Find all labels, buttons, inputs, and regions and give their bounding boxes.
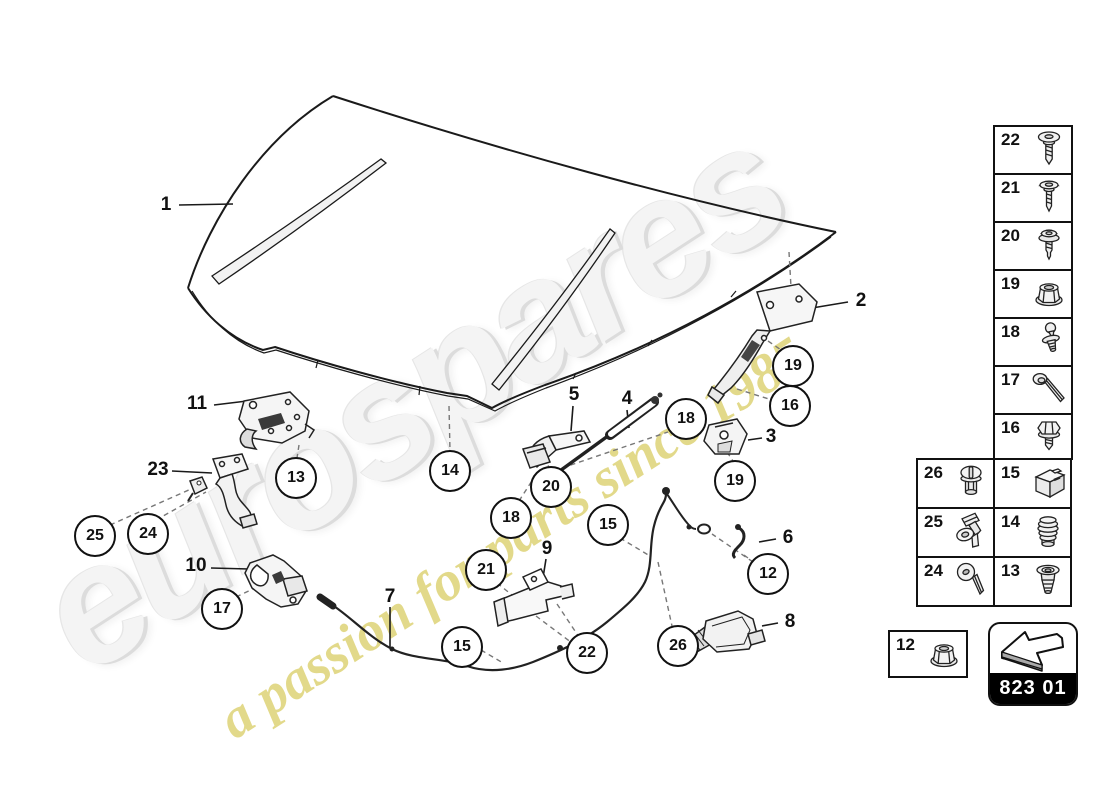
part-label-11[interactable]: 11	[187, 393, 207, 415]
callout-13[interactable]: 13	[275, 457, 317, 499]
legend-cell-17[interactable]: 17	[993, 365, 1073, 415]
callout-21[interactable]: 21	[465, 549, 507, 591]
part-latch	[245, 555, 307, 607]
legend-number: 19	[1001, 274, 1020, 294]
legend-number: 13	[1001, 561, 1020, 581]
part-label-23[interactable]: 23	[147, 459, 168, 481]
section-badge[interactable]: 823 01	[988, 622, 1078, 706]
legend-number: 12	[896, 635, 915, 655]
part-cable-clip	[733, 524, 744, 558]
callout-15b[interactable]: 15	[441, 626, 483, 668]
callout-20[interactable]: 20	[530, 466, 572, 508]
clip-block-icon	[1028, 462, 1068, 506]
callout-12[interactable]: 12	[747, 553, 789, 595]
part-label-6[interactable]: 6	[783, 527, 794, 549]
part-strut-bracket	[704, 419, 747, 454]
flange-nut-icon	[924, 633, 964, 675]
callout-16[interactable]: 16	[769, 385, 811, 427]
legend-number: 17	[1001, 370, 1020, 390]
legend-number: 20	[1001, 226, 1020, 246]
legend-cell-12[interactable]: 12	[888, 630, 968, 678]
expanding-grommet-icon	[1028, 560, 1068, 604]
bonnet-diagram-art	[0, 0, 1100, 800]
part-label-10[interactable]: 10	[185, 555, 206, 577]
legend-number: 25	[924, 512, 943, 532]
legend-cell-25[interactable]: 25	[916, 507, 995, 558]
legend-number: 14	[1001, 512, 1020, 532]
legend-cell-14[interactable]: 14	[993, 507, 1072, 558]
legend-cell-22[interactable]: 22	[993, 125, 1073, 175]
callout-24[interactable]: 24	[127, 513, 169, 555]
part-label-4[interactable]: 4	[622, 388, 633, 410]
part-cable-bracket	[494, 569, 574, 626]
oval-head-screw-icon	[1029, 176, 1069, 220]
part-label-7[interactable]: 7	[385, 586, 396, 608]
callout-26[interactable]: 26	[657, 625, 699, 667]
legend-cell-20[interactable]: 20	[993, 221, 1073, 271]
legend-cell-15[interactable]: 15	[993, 458, 1072, 509]
callout-15a[interactable]: 15	[587, 504, 629, 546]
long-bolt-icon	[1029, 368, 1069, 412]
bonnet-crease-left	[212, 159, 386, 284]
part-label-2[interactable]: 2	[856, 290, 867, 312]
direction-arrow-icon	[997, 625, 1069, 673]
legend-cell-13[interactable]: 13	[993, 556, 1072, 607]
callout-17[interactable]: 17	[201, 588, 243, 630]
part-label-3[interactable]: 3	[766, 426, 777, 448]
part-label-9[interactable]: 9	[542, 538, 553, 560]
legend-cell-16[interactable]: 16	[993, 413, 1073, 460]
pan-head-screw-icon	[1029, 128, 1069, 172]
plastic-nut-icon	[951, 462, 991, 506]
part-release-bracket	[188, 454, 257, 528]
washer-screw-icon	[1029, 224, 1069, 268]
flange-nut-icon	[1029, 272, 1069, 316]
torx-screw-icon	[951, 560, 991, 604]
legend-cell-19[interactable]: 19	[993, 269, 1073, 319]
retaining-clip-icon	[951, 511, 991, 555]
callout-14[interactable]: 14	[429, 450, 471, 492]
legend-number: 24	[924, 561, 943, 581]
part-label-8[interactable]: 8	[785, 611, 796, 633]
legend-number: 26	[924, 463, 943, 483]
part-label-5[interactable]: 5	[569, 384, 580, 406]
legend-number: 18	[1001, 322, 1020, 342]
legend-number: 22	[1001, 130, 1020, 150]
parts-diagram-page: eurospares a passion for parts since 198…	[0, 0, 1100, 800]
part-lock	[239, 392, 314, 449]
callout-18a[interactable]: 18	[665, 398, 707, 440]
callout-25[interactable]: 25	[74, 515, 116, 557]
callout-19a[interactable]: 19	[772, 345, 814, 387]
rubber-buffer-icon	[1028, 511, 1068, 555]
callout-19b[interactable]: 19	[714, 460, 756, 502]
ball-stud-icon	[1029, 320, 1069, 364]
legend-cell-26[interactable]: 26	[916, 458, 995, 509]
legend-number: 16	[1001, 418, 1020, 438]
hex-flange-bolt-icon	[1029, 415, 1069, 459]
callout-22[interactable]: 22	[566, 632, 608, 674]
legend-number: 21	[1001, 178, 1020, 198]
section-code: 823 01	[990, 673, 1076, 704]
legend-number: 15	[1001, 463, 1020, 483]
part-label-1[interactable]: 1	[161, 194, 172, 216]
legend-cell-24[interactable]: 24	[916, 556, 995, 607]
callout-18b[interactable]: 18	[490, 497, 532, 539]
legend-cell-18[interactable]: 18	[993, 317, 1073, 367]
legend-cell-21[interactable]: 21	[993, 173, 1073, 223]
